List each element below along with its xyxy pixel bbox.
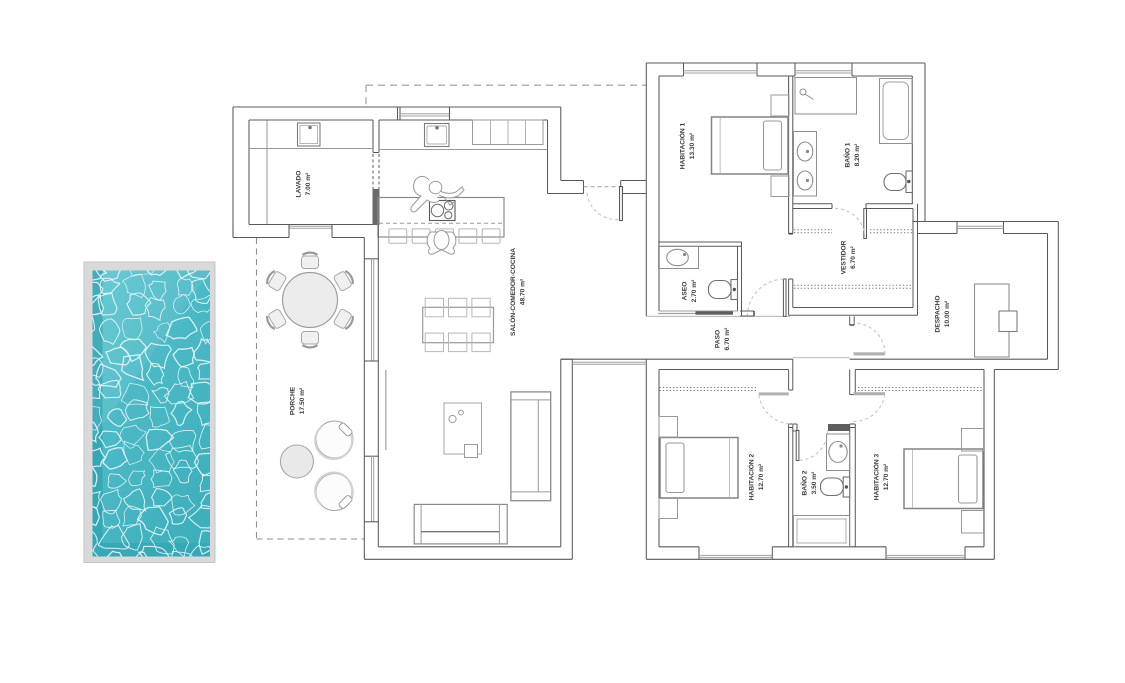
svg-text:7.00 m²: 7.00 m² — [305, 172, 312, 196]
svg-text:LAVADO: LAVADO — [296, 171, 303, 198]
svg-text:PORCHE: PORCHE — [290, 386, 297, 415]
svg-text:6.70 m²: 6.70 m² — [724, 327, 731, 351]
svg-text:SALÓN-COMEDOR-COCINA: SALÓN-COMEDOR-COCINA — [508, 248, 517, 336]
svg-text:12.70 m²: 12.70 m² — [883, 463, 890, 490]
svg-text:8.20 m²: 8.20 m² — [854, 143, 861, 167]
svg-text:ASEO: ASEO — [682, 282, 689, 301]
svg-text:48.70 m²: 48.70 m² — [519, 278, 526, 305]
svg-text:VESTIDOR: VESTIDOR — [841, 240, 848, 274]
svg-text:DESPACHO: DESPACHO — [935, 296, 942, 333]
svg-text:HABITACIÓN 1: HABITACIÓN 1 — [678, 122, 687, 169]
svg-text:12.70 m²: 12.70 m² — [758, 463, 765, 490]
svg-text:6.70 m²: 6.70 m² — [850, 245, 857, 269]
svg-text:10.00 m²: 10.00 m² — [944, 300, 951, 327]
svg-text:17.50 m²: 17.50 m² — [299, 387, 306, 414]
svg-text:BAÑO 1: BAÑO 1 — [843, 142, 852, 167]
svg-text:3.50 m²: 3.50 m² — [811, 471, 818, 495]
svg-text:HABITACIÓN 3: HABITACIÓN 3 — [872, 453, 881, 500]
svg-text:PASO: PASO — [715, 330, 722, 348]
svg-text:2.70 m²: 2.70 m² — [691, 279, 698, 303]
svg-text:HABITACIÓN 2: HABITACIÓN 2 — [747, 453, 756, 500]
svg-text:13.30 m²: 13.30 m² — [689, 132, 696, 159]
svg-text:BAÑO 2: BAÑO 2 — [800, 470, 809, 495]
